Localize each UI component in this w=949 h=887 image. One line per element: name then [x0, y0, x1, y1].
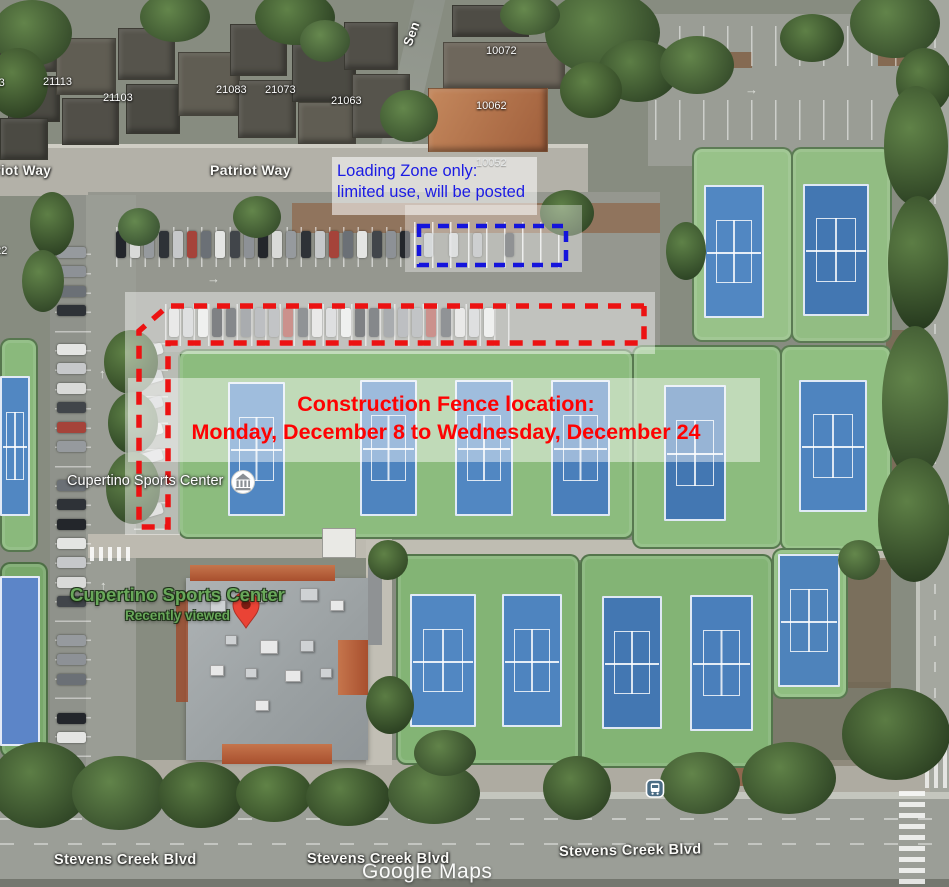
construction-annotation: Construction Fence location: Monday, Dec… — [132, 391, 760, 446]
loading-zone-annotation: Loading Zone only: limited use, will be … — [337, 161, 525, 203]
street-label: Sen — [400, 19, 423, 48]
construction-line2: Monday, December 8 to Wednesday, Decembe… — [132, 419, 760, 447]
construction-line1: Construction Fence location: — [132, 391, 760, 419]
place-status: Recently viewed — [70, 608, 230, 623]
street-label: Stevens Creek Blvd — [559, 842, 702, 860]
house-number-label: 122 — [0, 245, 7, 257]
street-label: Patriot Way — [210, 162, 291, 178]
house-number-label: 21083 — [216, 84, 247, 96]
house-number-label: 21103 — [103, 92, 133, 104]
loading-zone-line2: limited use, will be posted — [337, 182, 525, 203]
house-number-label: 21073 — [265, 84, 296, 96]
street-label: Stevens Creek Blvd — [54, 852, 197, 868]
place-name[interactable]: Cupertino Sports Center — [70, 584, 230, 606]
map-viewport[interactable]: ↑↑→→ Cupertino Spor — [0, 0, 949, 887]
house-number-label: 21113 — [43, 76, 72, 88]
street-label: Patriot Way — [0, 163, 51, 178]
loading-zone-line1: Loading Zone only: — [337, 161, 525, 182]
house-number-label: 10072 — [486, 45, 517, 57]
house-number-label: 21063 — [331, 95, 362, 107]
place-label-sports-center[interactable]: Cupertino Sports Center Recently viewed — [70, 584, 230, 623]
house-number-label: 21123 — [0, 77, 5, 89]
house-number-label: 10062 — [476, 100, 507, 112]
poi-label-sports-center[interactable]: Cupertino Sports Center — [67, 473, 223, 489]
street-label: Stevens Creek Blvd — [307, 851, 450, 867]
